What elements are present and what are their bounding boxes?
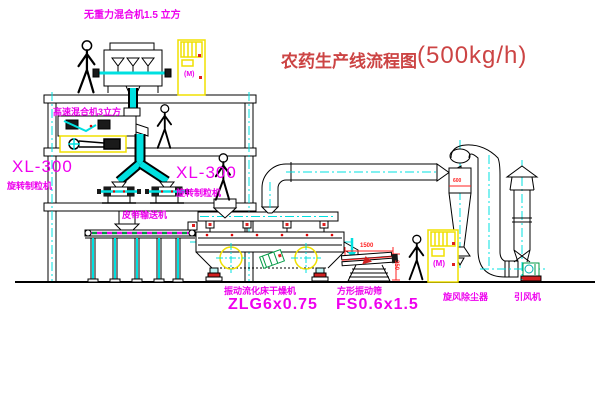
high-speed-mixer-base [60,136,126,152]
label-sieve-model: FS0.6x1.5 [336,297,419,313]
dryer-foot-right [312,268,328,281]
dryer-spring-mounts [206,221,328,232]
control-cabinet-top [178,40,205,95]
label-belt-conveyor: 皮带输送机 [122,211,167,220]
indicator-dot [452,242,455,245]
worker-figure [79,41,95,92]
motor-symbol: (M) [184,71,195,78]
drawing-title: 农药生产线流程图 (500kg/h) [281,42,527,72]
label-granulator-mid: 旋转制粒机 [176,189,221,198]
label-fan: 引风机 [514,293,541,302]
label-xl300-mid: XL-300 [176,164,237,181]
exhaust-duct [262,162,461,213]
label-sieve-name: 方形振动筛 [337,287,382,296]
indicator-dot [452,263,455,266]
worker-figure [410,235,424,279]
indicator-dot [199,76,202,79]
label-cyclone: 旋风除尘器 [443,293,488,302]
label-zero-gravity-mixer: 无重力混合机1.5 立方 [84,11,181,21]
control-cabinet-ground [428,230,458,282]
dim-cyclone: 600 [453,179,461,184]
label-xl300-left: XL-300 [12,158,73,175]
conveyor-legs [88,238,183,282]
induced-draft-fan [521,263,541,281]
worker-figure [158,105,171,148]
process-flow-diagram: 农药生产线流程图 (500kg/h) 无重力混合机1.5 立方 高速混合机3立方… [0,0,600,403]
cyclone-outlet-pipe [451,145,548,277]
label-dryer-model: ZLG6x0.75 [228,297,318,313]
dim-sieve-length: 1500 [360,243,373,249]
dim-sieve-height: 350 [393,260,399,270]
zero-gravity-mixer [93,43,171,95]
rotary-granulator-left [97,182,141,203]
belt-conveyor [85,230,195,282]
indicator-dot [198,54,201,57]
title-text: 农药生产线流程图 [281,42,417,72]
mixer-funnels [112,58,154,72]
dryer-foot-left [206,268,222,281]
motor-symbol: (M) [433,259,445,268]
label-high-speed-mixer: 高速混合机3立方 [53,108,121,117]
sieve-base [348,265,390,281]
label-granulator-left: 旋转制粒机 [7,182,52,191]
label-dryer-name: 振动流化床干燥机 [224,287,296,296]
floor-slab-top [44,95,256,103]
title-capacity: (500kg/h) [417,42,527,70]
